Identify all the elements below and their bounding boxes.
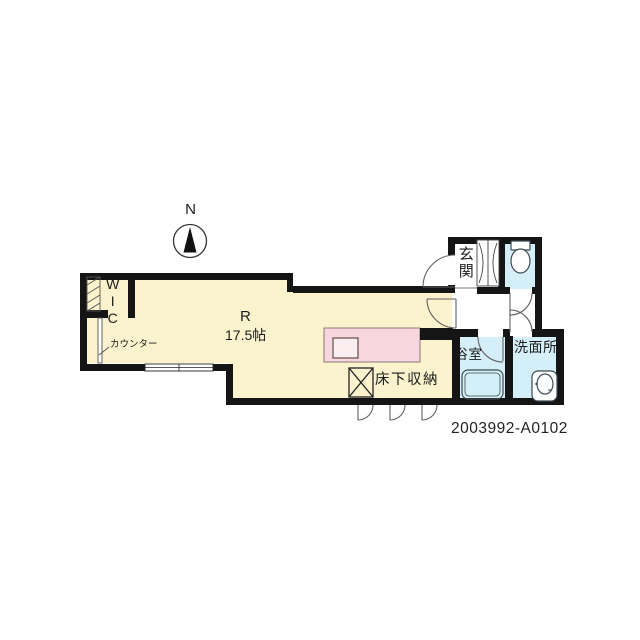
- wall-left: [80, 273, 87, 370]
- washroom-room-label: 洗面所: [514, 340, 558, 355]
- wall-entrance-bottom: [477, 287, 510, 294]
- wic-room-label: WIC: [105, 276, 120, 327]
- wall-right-upper: [535, 237, 542, 336]
- wall-bottom: [226, 398, 564, 405]
- sink-icon: [532, 371, 557, 401]
- wall-entrance-left-b: [448, 285, 455, 293]
- front-door-swing-icon: [423, 255, 455, 287]
- wall-wic-divider: [128, 273, 135, 318]
- north-label: N: [182, 202, 199, 218]
- kitchen-counter: [324, 328, 420, 362]
- north-arrow-icon: [174, 225, 207, 258]
- plan-id-label: 2003992-A0102: [451, 421, 568, 437]
- main-room-area-label: 17.5帖: [225, 328, 266, 343]
- kitchen-sink-icon: [333, 338, 358, 358]
- floor-plan: N WIC カウンター R 17.5帖 床下収納 玄関 浴室 洗面所 20039…: [0, 0, 640, 640]
- wall-bath-top-b: [503, 329, 510, 337]
- counter-label: カウンター: [110, 340, 158, 350]
- wall-toilet-bottom: [532, 287, 542, 294]
- vent-swing-icon-1: [358, 405, 373, 420]
- vent-swing-icon-2: [390, 405, 405, 420]
- floor-plan-drawing: [0, 0, 640, 640]
- wall-bath-washroom-divider: [505, 336, 513, 405]
- toilet-icon: [511, 241, 530, 273]
- vent-swing-icon-3: [422, 405, 437, 420]
- wall-bottom-left-a: [80, 364, 145, 371]
- window-icon: [145, 364, 213, 371]
- wall-top-step: [287, 273, 293, 292]
- washroom-door-swing-icon: [510, 309, 532, 332]
- shoe-cabinet-icon: [477, 240, 499, 286]
- counter-edge-line: [98, 318, 102, 363]
- entrance-room-label: 玄関: [457, 246, 473, 280]
- bathroom-room-label: 浴室: [454, 348, 483, 362]
- floor-storage-label: 床下収納: [375, 373, 439, 388]
- main-room-label: R: [240, 309, 251, 325]
- wall-bath-left: [452, 329, 460, 405]
